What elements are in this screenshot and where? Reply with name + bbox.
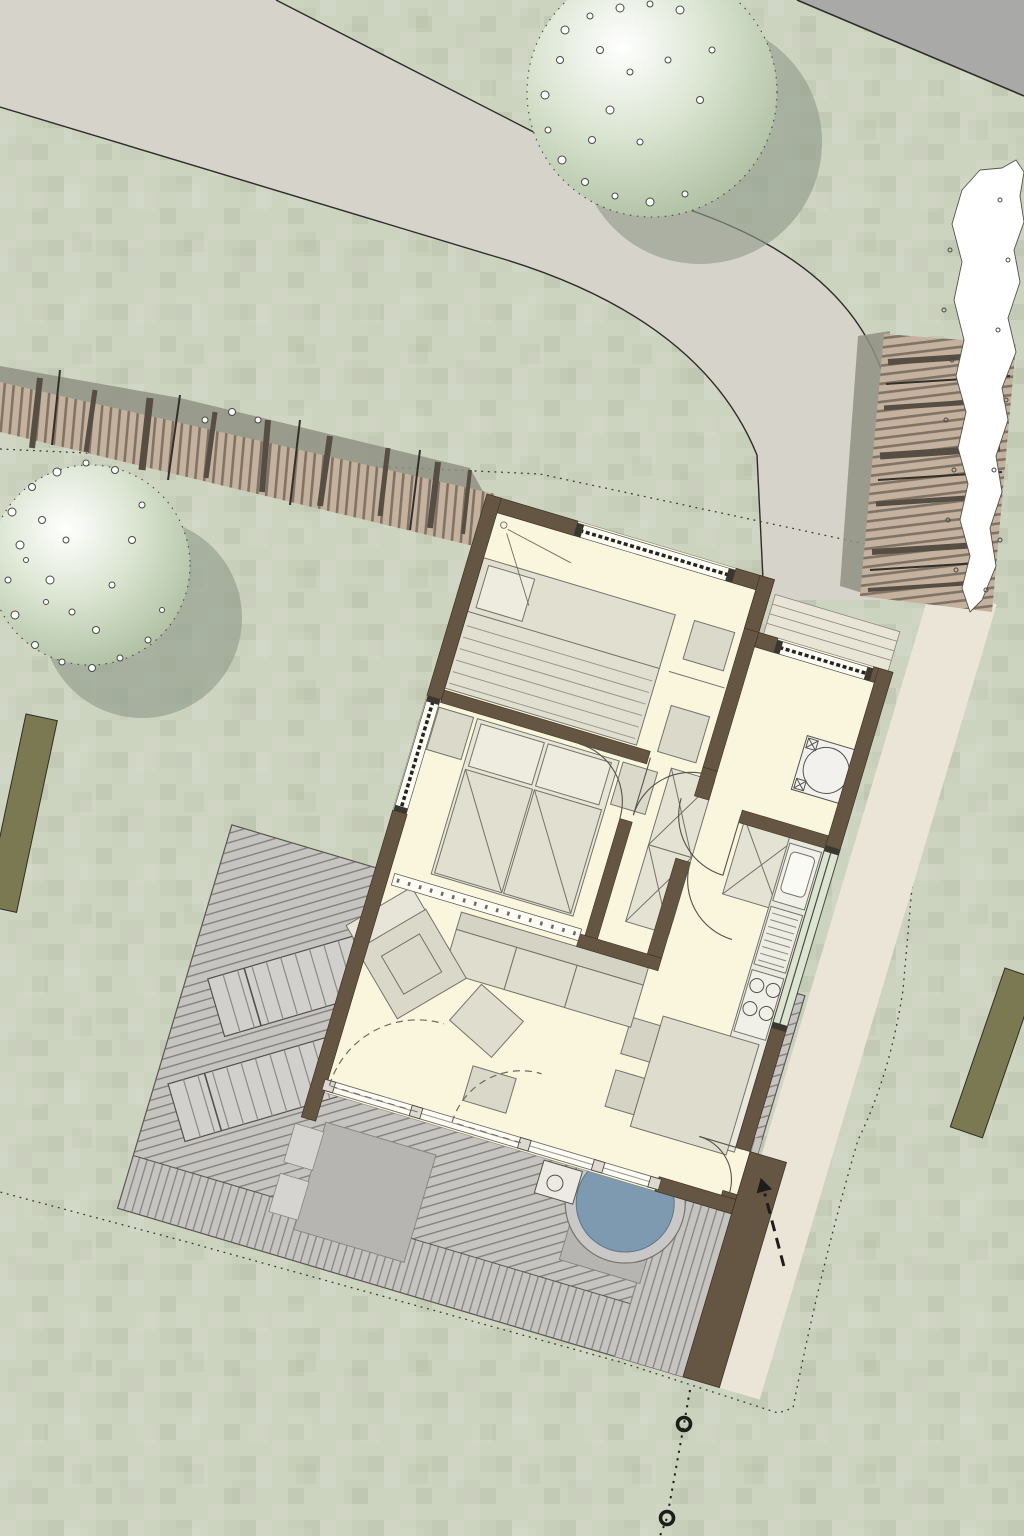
site-plan [0, 0, 1024, 1536]
site-plan-canvas [0, 0, 1024, 1536]
